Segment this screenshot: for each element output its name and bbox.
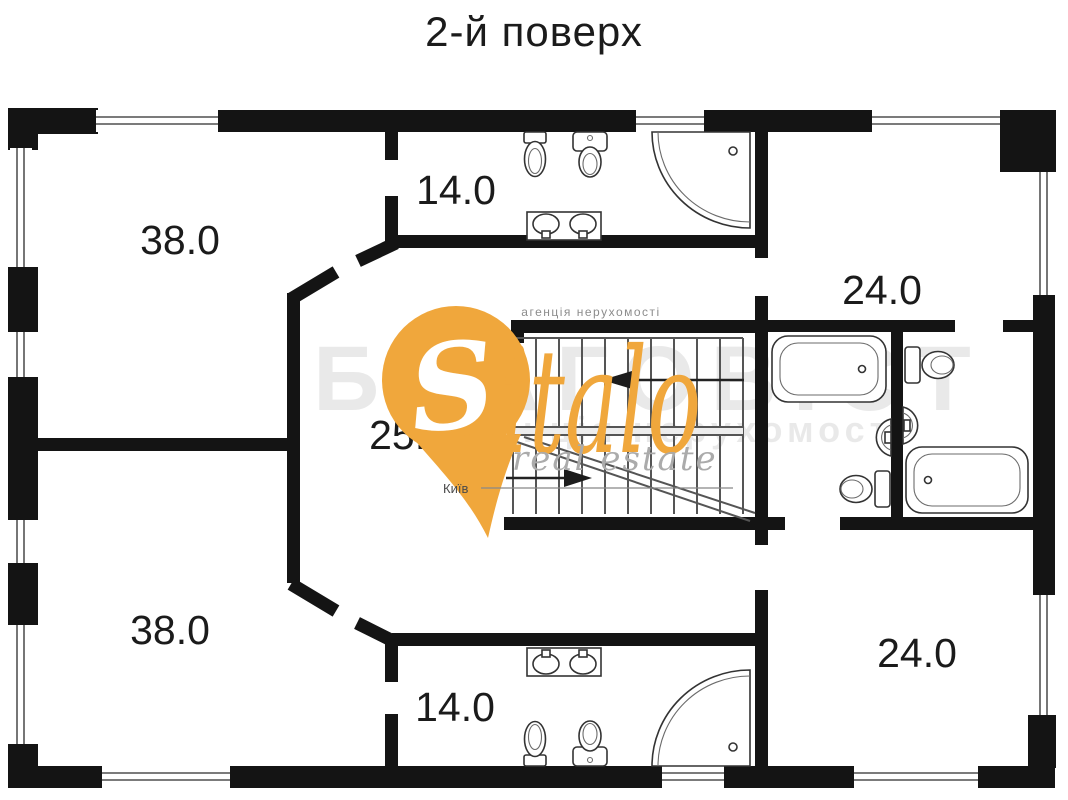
toilet-icon [840, 471, 890, 507]
room-area-label: 38.0 [130, 607, 210, 653]
city-label: Київ [443, 481, 468, 496]
agency-watermark-label: агенція нерухомості [521, 305, 660, 319]
window-icon [96, 110, 218, 132]
bidet-icon [573, 721, 607, 766]
window-icon [662, 766, 724, 788]
bidet-icon [573, 132, 607, 177]
corner-shower-icon [652, 132, 750, 228]
window-icon [1033, 595, 1055, 715]
room-area-label: 38.0 [140, 217, 220, 263]
double-sink-vanity-icon [527, 648, 601, 676]
double-sink-vanity-icon [527, 212, 601, 240]
bathtub-icon [906, 447, 1028, 513]
room-area-label: 24.0 [877, 630, 957, 676]
room-area-label: 14.0 [415, 684, 495, 730]
bathtub-icon [772, 336, 886, 402]
bathroom-top-fixtures [524, 132, 750, 240]
window-icon [10, 520, 32, 563]
toilet-icon [524, 722, 546, 767]
window-icon [854, 766, 978, 788]
window-icon [636, 110, 704, 132]
window-icon [1033, 172, 1055, 295]
window-icon [10, 332, 32, 377]
window-icon [102, 766, 230, 788]
floor-plan-drawing: БЛАГОВІСТ агенція нерухомості [0, 0, 1068, 800]
brand-initial: S [403, 313, 502, 460]
toilet-icon [524, 132, 546, 177]
floor-plan-page: 2-й поверх БЛАГОВІСТ агенція нерухомості [0, 0, 1068, 800]
brand-tagline: real estate [512, 439, 718, 479]
window-icon [872, 110, 1000, 132]
bathroom-bottom-fixtures [524, 648, 750, 766]
room-area-label: 24.0 [842, 267, 922, 313]
room-area-label: 14.0 [416, 167, 496, 213]
window-icon [10, 148, 32, 267]
corner-shower-icon [652, 670, 750, 766]
window-icon [10, 625, 32, 744]
agency-watermark: агенція нерухомості S italo real estate … [382, 305, 733, 538]
